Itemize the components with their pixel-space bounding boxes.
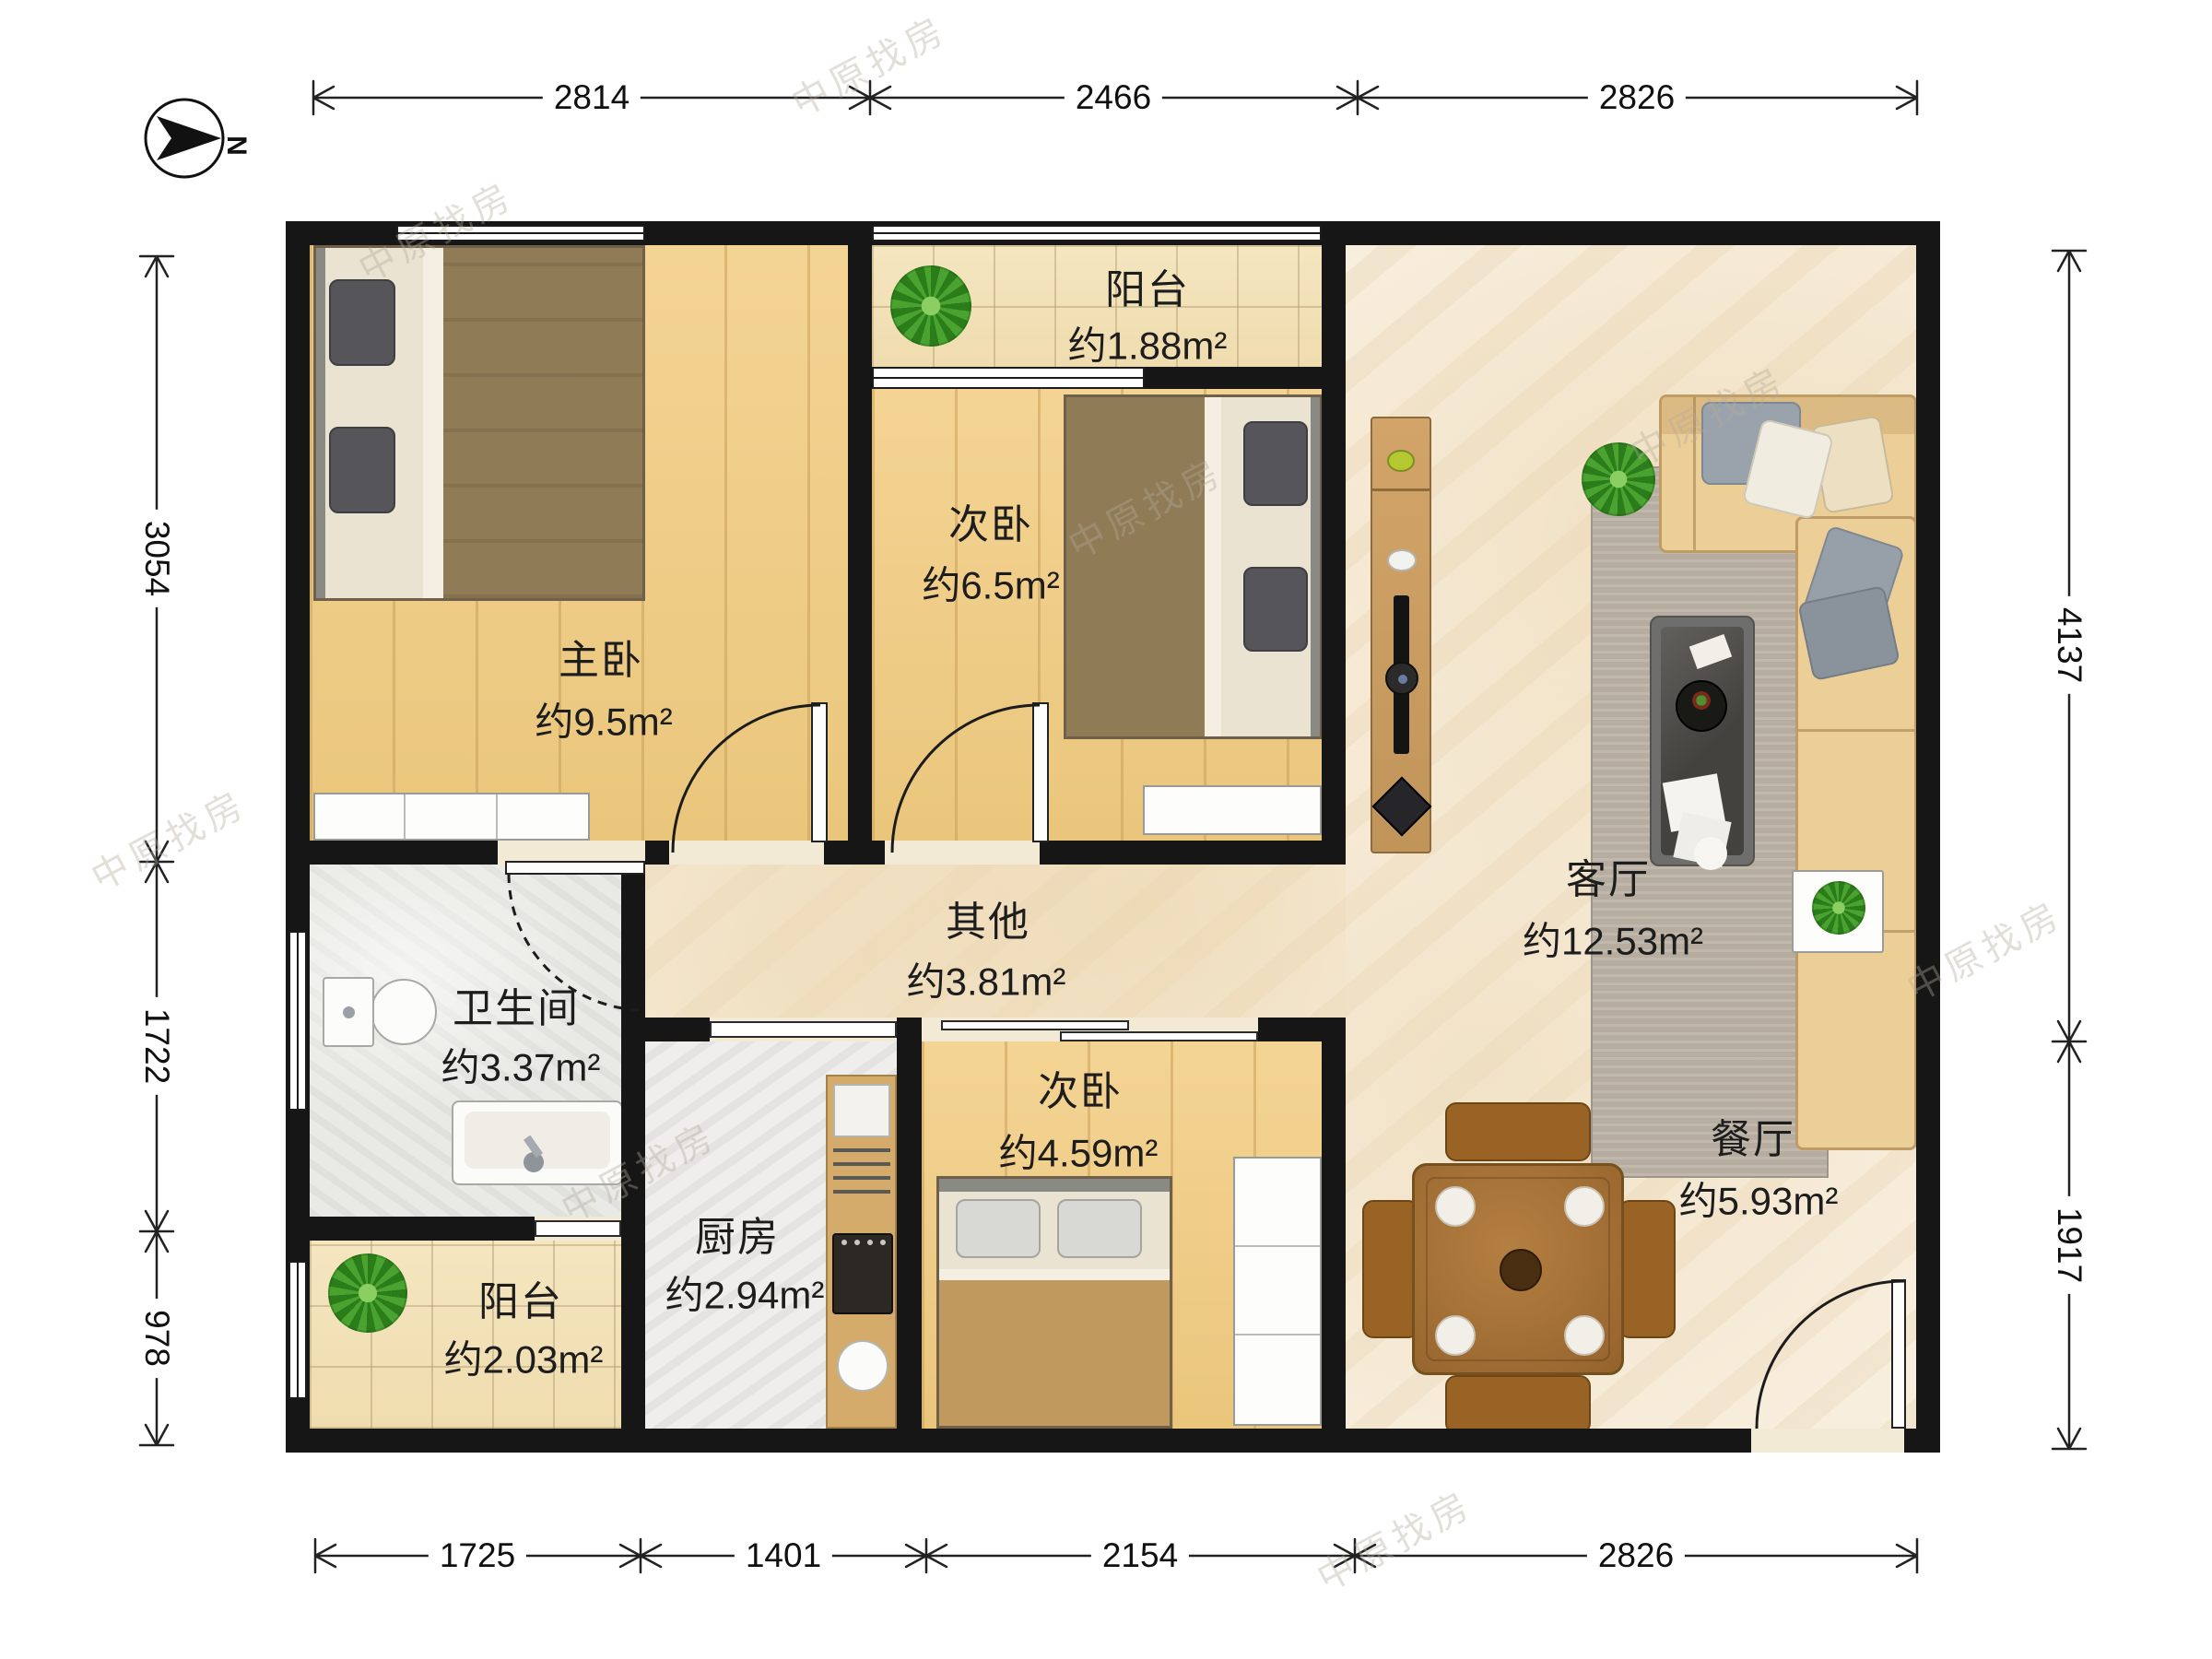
toilet-bowl <box>371 979 437 1045</box>
room-area-master-bedroom: 约9.5m² <box>535 691 672 747</box>
door-leaf-bedroom-top <box>1032 702 1049 842</box>
dining-chair-bottom <box>1445 1375 1591 1434</box>
dim-right-2: 1917 <box>2050 1196 2088 1294</box>
oven-icon <box>832 1233 893 1314</box>
fridge-icon <box>833 1084 890 1137</box>
bed-pillow <box>1243 567 1308 652</box>
room-label-master-bedroom: 主卧 <box>559 627 643 686</box>
wall-stub <box>824 841 872 865</box>
decor-item <box>1387 549 1417 571</box>
wall-kitchen-right <box>897 1018 922 1429</box>
compass-circle <box>146 100 223 177</box>
table-plate <box>1694 837 1727 870</box>
wall-hall-bottom <box>1258 1018 1346 1041</box>
bed-pillow <box>329 279 395 366</box>
dim-top-3: 2826 <box>1588 78 1686 117</box>
room-area-living-room: 约12.53m² <box>1523 911 1703 967</box>
sliding-door-kitchen <box>710 1021 897 1038</box>
kitchen-counter <box>826 1075 897 1429</box>
stove-burner-icon <box>833 1148 890 1200</box>
bed-headboard <box>1311 397 1320 736</box>
room-area-bedroom-second-bottom: 约4.59m² <box>999 1123 1159 1179</box>
floorplan-canvas: N 阳台 约1.88m² 次卧 约6.5m² 主卧 约9.5m² 客厅 约12.… <box>0 0 2212 1659</box>
oven-knobs <box>841 1240 847 1245</box>
bedroom-top-cabinet <box>1143 785 1322 835</box>
dim-bottom-2: 1401 <box>735 1536 832 1575</box>
room-label-bedroom-second-bottom: 次卧 <box>1038 1058 1123 1117</box>
bedroom-top-bed <box>1064 394 1323 739</box>
bed-pillow <box>329 427 395 513</box>
master-bed <box>313 245 645 601</box>
watermark: 中原找房 <box>80 774 255 901</box>
dim-bottom-3: 2154 <box>1091 1536 1189 1575</box>
dining-chair-top <box>1445 1102 1591 1161</box>
room-label-balcony-top: 阳台 <box>1105 256 1190 315</box>
tv-cabinet <box>1371 417 1431 853</box>
dim-top-2: 2466 <box>1065 78 1162 117</box>
bed-sheet-fold <box>939 1269 1170 1280</box>
master-cabinet <box>313 793 590 841</box>
decor-diamond <box>1371 776 1431 836</box>
bed-blanket <box>443 248 642 598</box>
teapot-icon <box>1500 1249 1542 1291</box>
sofa-seam <box>1798 729 1914 732</box>
wall-stub <box>645 841 669 865</box>
dim-bottom-1: 1725 <box>429 1536 526 1575</box>
door-leaf-bathroom <box>505 861 645 875</box>
wall-outer-right <box>1916 221 1940 1453</box>
cabinet-line <box>404 794 406 839</box>
room-label-living-room: 客厅 <box>1566 846 1651 905</box>
room-area-kitchen: 约2.94m² <box>665 1265 825 1321</box>
room-label-bathroom: 卫生间 <box>453 975 580 1034</box>
table-plant-icon <box>1692 691 1711 710</box>
wall-bedroom-top-bottom <box>1040 841 1322 865</box>
speaker-icon <box>1385 662 1418 695</box>
dim-top-1: 2814 <box>543 78 641 117</box>
bedroom-bottom-bed <box>936 1176 1172 1429</box>
dim-bottom-4: 2826 <box>1587 1536 1685 1575</box>
decor-item <box>1387 450 1415 472</box>
wardrobe-line <box>1235 1334 1320 1335</box>
plant-icon <box>890 265 971 347</box>
plate-icon <box>1564 1315 1605 1356</box>
room-area-dining-room: 约5.93m² <box>1679 1171 1839 1227</box>
table-plant-pot <box>1676 680 1727 732</box>
bed-pillow <box>956 1199 1041 1258</box>
wall-master-divider <box>848 245 872 865</box>
plate-icon <box>1435 1315 1476 1356</box>
watermark: 中原找房 <box>781 0 956 127</box>
watermark: 中原找房 <box>1306 1475 1481 1602</box>
room-area-bathroom: 约3.37m² <box>441 1037 601 1093</box>
compass-north-label: N <box>220 135 252 156</box>
room-label-bedroom-second-top: 次卧 <box>948 491 1033 550</box>
cabinet-line <box>496 794 498 839</box>
dining-chair-left <box>1362 1200 1419 1338</box>
tv-cabinet-divider <box>1372 488 1430 491</box>
wall-living-divider-lower <box>1322 1018 1346 1429</box>
bed-headboard <box>316 248 325 598</box>
bed-pillow <box>1243 421 1308 506</box>
plant-icon <box>328 1253 407 1333</box>
wall-bathroom-bottom <box>286 1217 535 1241</box>
bed-sheet-fold <box>423 248 443 598</box>
window-bathroom-left <box>288 931 307 1111</box>
wardrobe-line <box>1235 1245 1320 1247</box>
dining-table <box>1412 1163 1624 1375</box>
wardrobe <box>1233 1157 1322 1426</box>
room-area-balcony-top: 约1.88m² <box>1068 315 1228 371</box>
wall-hall-bottom <box>645 1018 710 1041</box>
room-label-balcony-bottom: 阳台 <box>478 1268 563 1327</box>
room-label-dining-room: 餐厅 <box>1711 1106 1795 1165</box>
plate-icon <box>1435 1186 1476 1227</box>
wall-stub <box>872 841 885 865</box>
speaker-dot <box>1398 675 1407 684</box>
sink-icon <box>837 1340 888 1392</box>
sliding-door-bedroom-panel <box>1060 1031 1258 1041</box>
dining-chair-right <box>1618 1200 1676 1338</box>
window-balcony-left <box>288 1261 307 1399</box>
coffee-table <box>1650 616 1755 866</box>
toilet-tank <box>323 977 374 1047</box>
plate-icon <box>1564 1186 1605 1227</box>
wall-outer-bottom <box>286 1429 1751 1453</box>
room-label-other: 其他 <box>946 888 1030 947</box>
door-leaf-entry <box>1891 1279 1906 1429</box>
room-area-other: 约3.81m² <box>907 951 1066 1007</box>
bed-pillow <box>1057 1199 1142 1258</box>
toilet-button <box>343 1006 355 1018</box>
plant-icon <box>1812 881 1865 935</box>
bed-headboard <box>939 1179 1170 1192</box>
dim-left-1: 3054 <box>137 510 176 607</box>
dim-left-2: 1722 <box>137 997 176 1095</box>
compass-arrow-icon <box>157 116 221 160</box>
window-balcony-railing <box>872 225 1322 241</box>
room-area-bedroom-second-top: 约6.5m² <box>922 555 1059 611</box>
wall-living-divider-upper <box>1322 245 1346 865</box>
dim-left-3: 978 <box>137 1299 176 1378</box>
wall-master-bottom <box>286 841 498 865</box>
door-leaf-master <box>811 702 828 842</box>
sliding-door-bedroom-panel <box>941 1020 1129 1030</box>
room-area-balcony-bottom: 约2.03m² <box>444 1329 604 1385</box>
room-label-kitchen: 厨房 <box>695 1204 780 1263</box>
dim-right-1: 4137 <box>2050 596 2088 694</box>
